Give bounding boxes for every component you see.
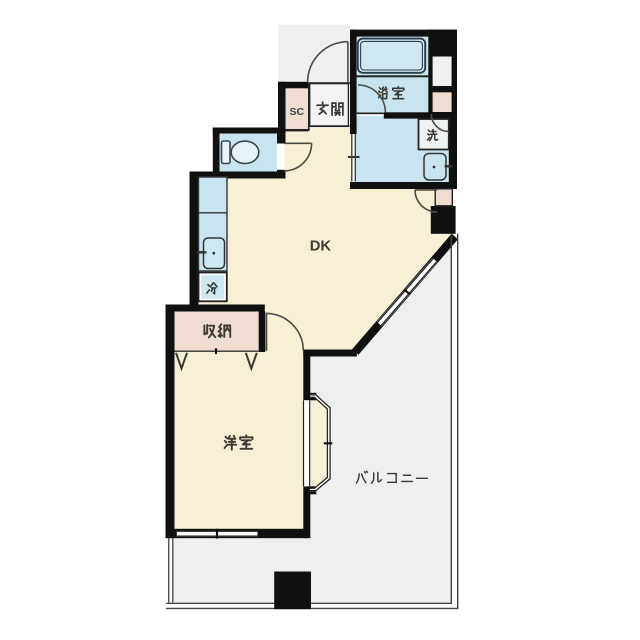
svg-text:SC: SC xyxy=(290,106,305,118)
svg-text:DK: DK xyxy=(310,238,332,254)
